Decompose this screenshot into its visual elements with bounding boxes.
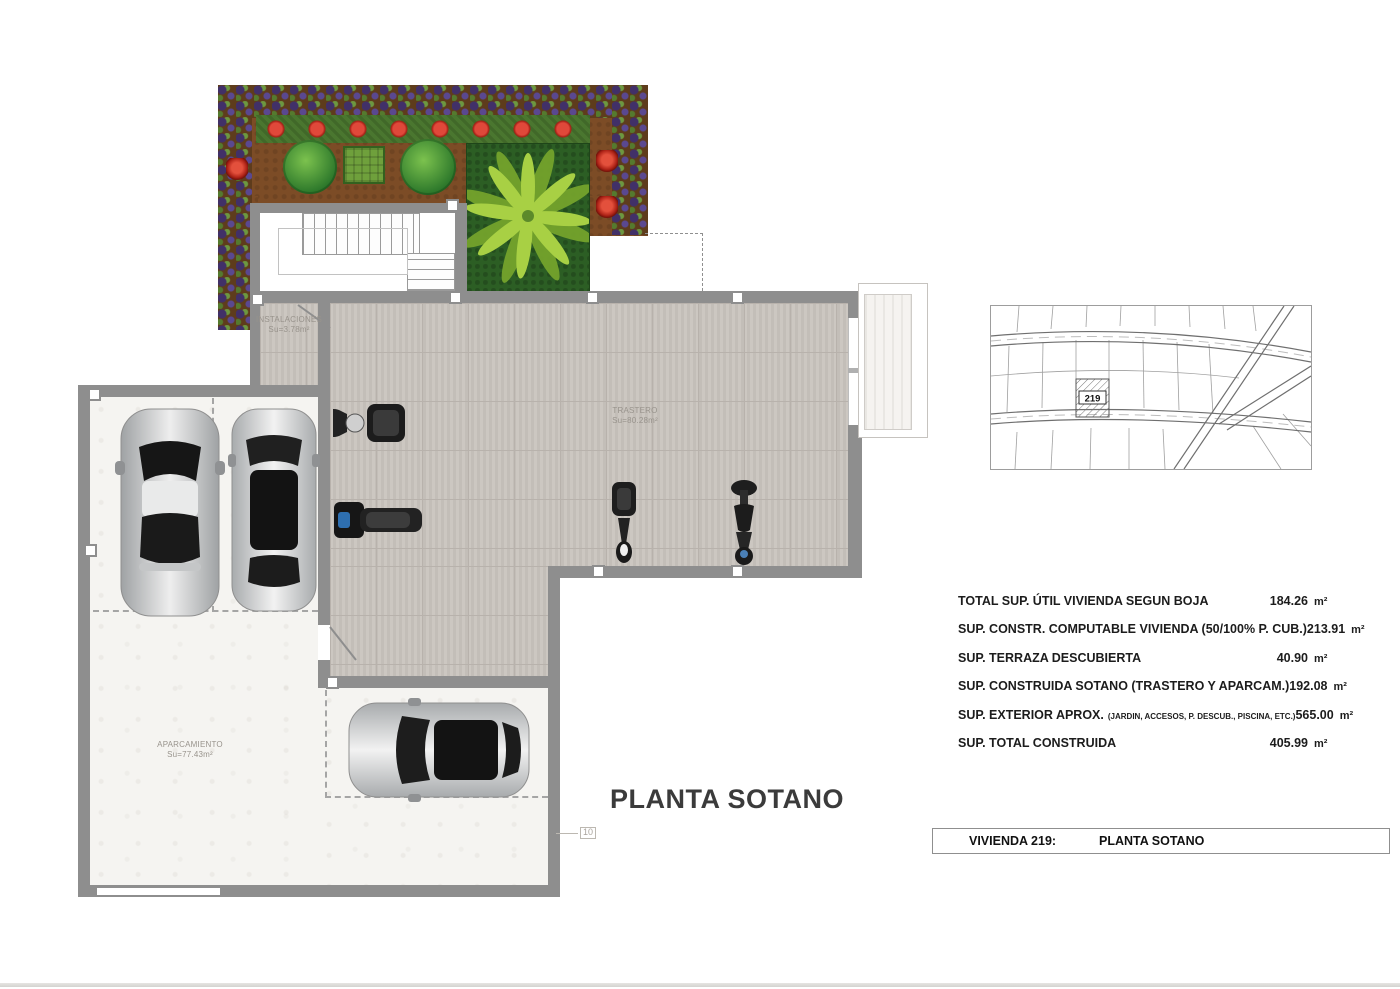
areas-table: TOTAL SUP. ÚTIL VIVIENDA SEGUN BOJA 184.…: [958, 594, 1340, 764]
row-label: SUP. CONSTR. COMPUTABLE VIVIENDA (50/100…: [958, 622, 1307, 636]
plan-title: PLANTA SOTANO: [610, 784, 822, 815]
stored-motorbike-top-view: [724, 478, 764, 568]
row-value: 565.00: [1295, 708, 1333, 722]
stored-motorbike-top-view: [604, 478, 644, 568]
room-label-instalaciones: INSTALACIONES Su=3.78m²: [252, 315, 326, 335]
row-label: TOTAL SUP. ÚTIL VIVIENDA SEGUN BOJA: [958, 594, 1209, 608]
row-value: 40.90: [1252, 651, 1308, 665]
row-value: 405.99: [1252, 736, 1308, 750]
title-block-vivienda: VIVIENDA 219:: [969, 834, 1056, 848]
title-block: VIVIENDA 219: PLANTA SOTANO: [932, 828, 1390, 854]
table-row: TOTAL SUP. ÚTIL VIVIENDA SEGUN BOJA 184.…: [958, 594, 1340, 622]
row-value: 213.91: [1307, 622, 1345, 636]
row-value: 184.26: [1252, 594, 1308, 608]
row-unit: m²: [1334, 710, 1353, 722]
floor-plan-sheet: INSTALACIONES Su=3.78m² TRASTERO Su=80.2…: [0, 0, 1400, 989]
row-label: SUP. CONSTRUIDA SOTANO (TRASTERO Y APARC…: [958, 679, 1289, 693]
car-sedan-horizontal-top-view: [346, 698, 532, 802]
row-unit: m²: [1308, 653, 1340, 665]
car-suv-top-view: [115, 405, 225, 620]
car-sedan-top-view: [228, 406, 320, 614]
row-value: 192.08: [1289, 679, 1327, 693]
row-unit: m²: [1308, 596, 1340, 608]
door-tag-label: 10: [583, 827, 593, 837]
scan-edge: [0, 983, 1400, 987]
room-label-trastero: TRASTERO Su=80.28m²: [592, 406, 678, 426]
table-row: SUP. TERRAZA DESCUBIERTA 40.90 m²: [958, 651, 1340, 679]
table-row: SUP. TOTAL CONSTRUIDA 405.99 m²: [958, 736, 1340, 764]
site-map-drawing: 219: [991, 306, 1311, 469]
door-tag-line: [556, 833, 578, 834]
row-unit: m²: [1345, 624, 1364, 636]
title-block-plano: PLANTA SOTANO: [1099, 834, 1204, 848]
room-label-aparcamiento: APARCAMIENTO Su=77.43m²: [142, 740, 238, 760]
plot-219-label: 219: [1085, 394, 1101, 405]
site-location-map: 219: [990, 305, 1312, 470]
row-label: SUP. EXTERIOR APROX.: [958, 708, 1104, 722]
table-row: SUP. EXTERIOR APROX. (JARDIN, ACCESOS, P…: [958, 708, 1340, 736]
motorcycle-top-view: [330, 492, 426, 548]
row-sublabel: (JARDIN, ACCESOS, P. DESCUB., PISCINA, E…: [1108, 712, 1296, 721]
row-unit: m²: [1308, 738, 1340, 750]
motorcycle-top-view: [333, 398, 415, 448]
row-unit: m²: [1328, 681, 1347, 693]
row-label: SUP. TOTAL CONSTRUIDA: [958, 736, 1116, 750]
row-label: SUP. TERRAZA DESCUBIERTA: [958, 651, 1141, 665]
table-row: SUP. CONSTR. COMPUTABLE VIVIENDA (50/100…: [958, 622, 1340, 650]
table-row: SUP. CONSTRUIDA SOTANO (TRASTERO Y APARC…: [958, 679, 1340, 707]
